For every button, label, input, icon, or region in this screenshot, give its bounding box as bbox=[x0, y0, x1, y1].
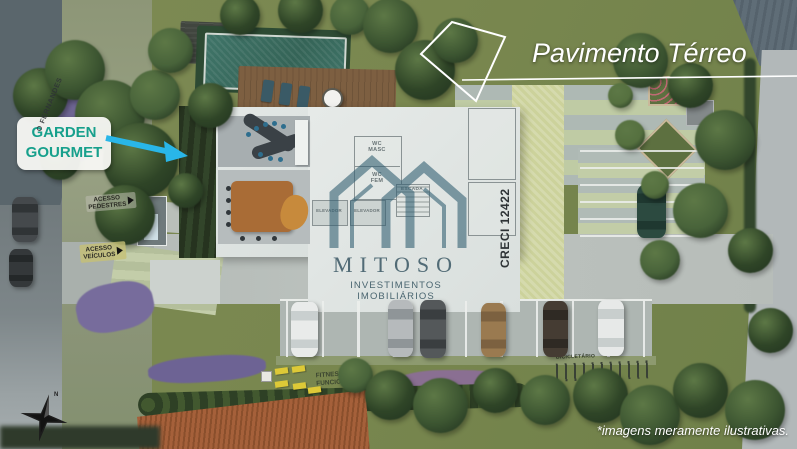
tree bbox=[673, 363, 728, 418]
page-title: Pavimento Térreo bbox=[532, 38, 772, 69]
mitoso-logo-icon bbox=[326, 146, 470, 248]
fitness-mat bbox=[292, 365, 306, 373]
disclaimer-text: *imagens meramente ilustrativas. bbox=[597, 423, 789, 438]
fitness-mat bbox=[275, 380, 289, 388]
arrow-right-icon bbox=[128, 196, 135, 204]
site-plan-render: WCMASC WCFEM ESCADA ELEVADOR ELEVADOR BI… bbox=[0, 0, 797, 449]
flower-bed bbox=[147, 352, 267, 386]
arrow-right-icon bbox=[117, 246, 124, 254]
entry-walkway bbox=[150, 260, 220, 304]
creci-number: CRECI 12422 bbox=[498, 188, 512, 268]
fitness-label: FITNESSFUNCIONAL bbox=[316, 370, 355, 388]
compass-rose bbox=[13, 387, 75, 449]
callout-arrow-icon bbox=[104, 128, 190, 166]
compass-north-label: N bbox=[54, 392, 58, 398]
fitness-mat bbox=[275, 367, 289, 375]
fitness-equipment bbox=[261, 371, 272, 382]
kitchen-counter bbox=[295, 120, 308, 165]
garden-gourmet-callout: GARDENGOURMET bbox=[17, 117, 111, 170]
watermark-brand: MITOSO bbox=[318, 252, 474, 278]
entrance-glass bbox=[144, 214, 158, 240]
watermark-tagline: INVESTIMENTOS IMOBILIÁRIOS bbox=[318, 280, 474, 302]
bike-racks bbox=[556, 360, 649, 381]
